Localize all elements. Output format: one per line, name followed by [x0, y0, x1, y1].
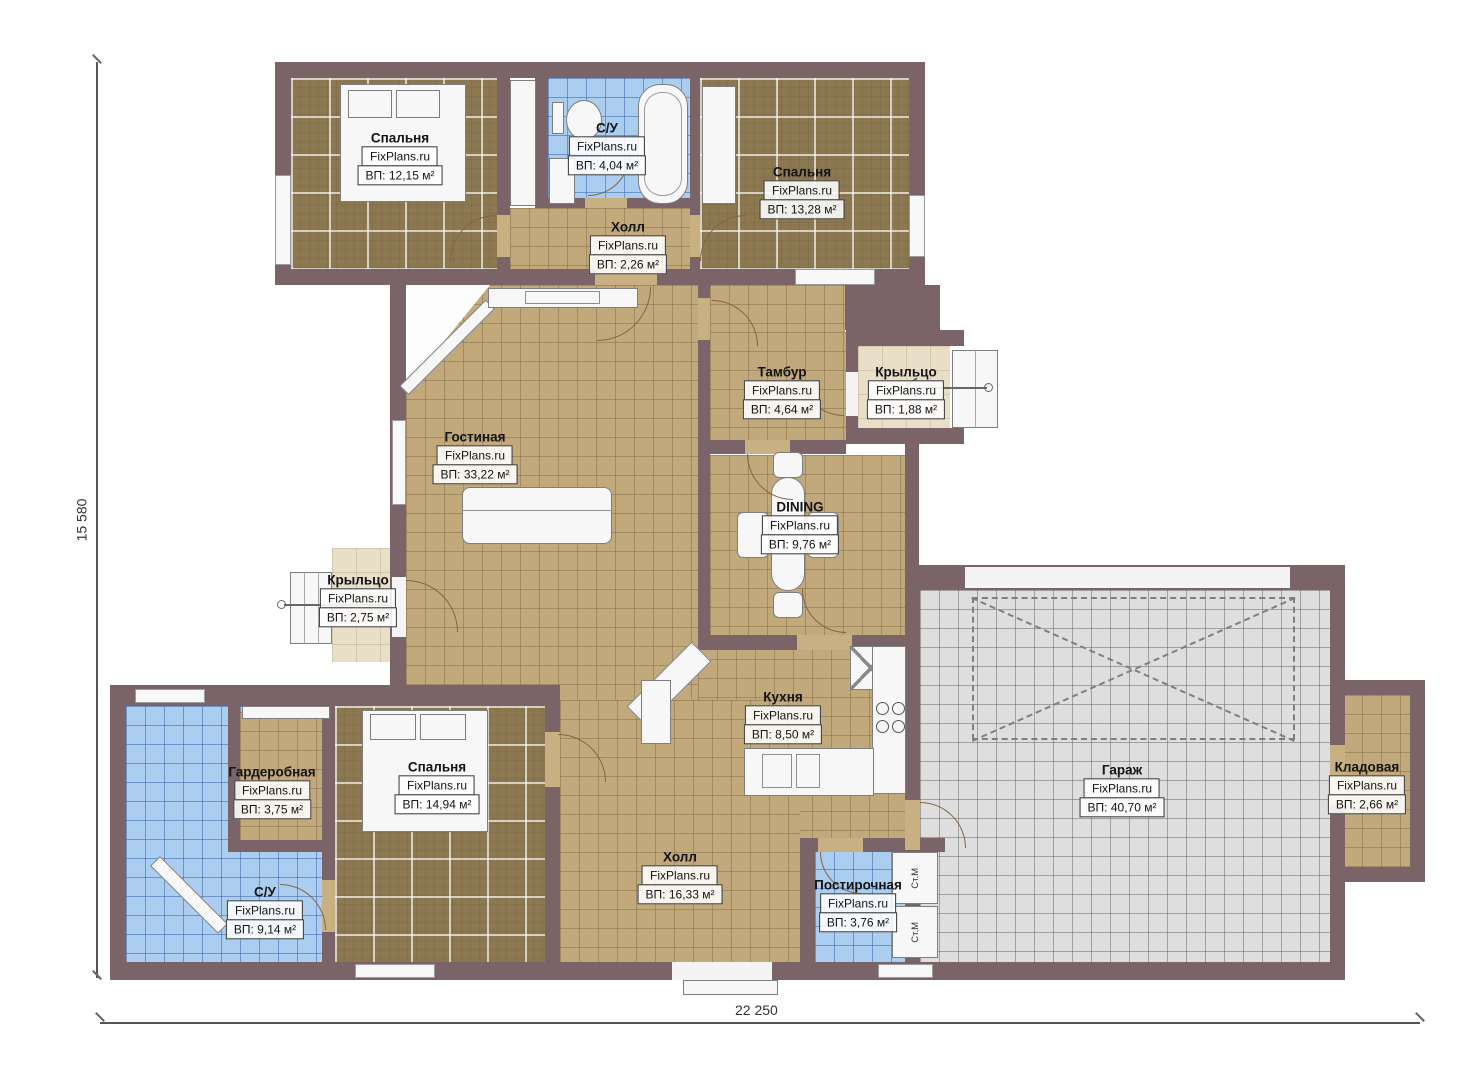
watermark: FixPlans.ru: [868, 380, 944, 400]
watermark: FixPlans.ru: [762, 515, 838, 535]
room-label-wardrobe: Гардеробная FixPlans.ru ВП: 3,75 м²: [228, 764, 315, 819]
stove-burner: [892, 720, 905, 733]
wall: [955, 962, 1345, 980]
room-label-bedroom-top-left: Спальня FixPlans.ru ВП: 12,15 м²: [358, 130, 443, 185]
pillow-symbol: [370, 714, 416, 740]
window: [795, 269, 875, 285]
watermark: FixPlans.ru: [227, 900, 303, 920]
washer-label: Ст.М: [910, 868, 921, 889]
room-label-tambur: Тамбур FixPlans.ru ВП: 4,64 м²: [743, 364, 821, 419]
wall: [1330, 867, 1425, 882]
wall: [846, 428, 964, 444]
room-name: DINING: [776, 499, 823, 514]
floor-plan: Ст.М Ст.М Спальня FixPlans.ru ВП: 12,15 …: [0, 0, 1474, 1080]
room-label-bathroom-bottom: С/У FixPlans.ru ВП: 9,14 м²: [226, 884, 304, 939]
watermark: FixPlans.ru: [764, 180, 840, 200]
entry-arrow-circle: [984, 383, 993, 392]
room-label-garage: Гараж FixPlans.ru ВП: 40,70 м²: [1080, 762, 1165, 817]
window: [135, 689, 205, 703]
room-name: Крыльцо: [875, 364, 936, 379]
room-name: Кладовая: [1335, 759, 1400, 774]
stove-burner: [876, 702, 889, 715]
room-name: Кухня: [763, 689, 802, 704]
door-opening: [698, 298, 710, 340]
dimension-line-vertical: [96, 62, 98, 978]
room-label-hall-top: Холл FixPlans.ru ВП: 2,26 м²: [589, 219, 667, 274]
watermark: FixPlans.ru: [820, 893, 896, 913]
watermark: FixPlans.ru: [362, 146, 438, 166]
exit-step: [683, 980, 778, 995]
door-opening: [818, 838, 863, 852]
watermark: FixPlans.ru: [1329, 775, 1405, 795]
room-area: ВП: 4,64 м²: [743, 400, 821, 420]
stove-burner: [876, 720, 889, 733]
window: [909, 195, 925, 257]
room-name: Холл: [663, 849, 697, 864]
room-area: ВП: 14,94 м²: [395, 795, 480, 815]
window: [355, 964, 435, 978]
stove-burner: [892, 702, 905, 715]
room-area: ВП: 1,88 м²: [867, 400, 945, 420]
wall: [228, 840, 332, 852]
watermark: FixPlans.ru: [642, 865, 718, 885]
room-label-dining: DINING FixPlans.ru ВП: 9,76 м²: [761, 499, 839, 554]
wall: [905, 444, 919, 565]
door-opening: [797, 635, 852, 650]
room-area: ВП: 2,75 м²: [319, 608, 397, 628]
room-area: ВП: 3,75 м²: [233, 800, 311, 820]
wall: [392, 685, 560, 706]
bathtub-inner: [644, 92, 682, 196]
door-opening: [905, 800, 920, 850]
room-label-storage: Кладовая FixPlans.ru ВП: 2,66 м²: [1328, 759, 1406, 814]
room-area: ВП: 12,15 м²: [358, 166, 443, 186]
wardrobe-closet-symbol: [510, 80, 536, 206]
tv-stand-inner: [525, 291, 600, 304]
door-opening: [690, 215, 700, 257]
watermark: FixPlans.ru: [1084, 778, 1160, 798]
dimension-label-width: 22 250: [735, 1002, 778, 1018]
entry-arrow-circle: [277, 600, 286, 609]
entrance-door-opening: [846, 372, 858, 416]
room-area: ВП: 16,33 м²: [638, 885, 723, 905]
watermark: FixPlans.ru: [399, 775, 475, 795]
room-area: ВП: 8,50 м²: [744, 725, 822, 745]
watermark: FixPlans.ru: [234, 780, 310, 800]
wardrobe-closet-symbol: [242, 706, 330, 719]
wall: [110, 962, 560, 980]
room-name: Гостиная: [444, 429, 505, 444]
watermark: FixPlans.ru: [744, 380, 820, 400]
room-name: Крыльцо: [327, 572, 388, 587]
wall: [846, 330, 964, 346]
watermark: FixPlans.ru: [745, 705, 821, 725]
washer-label: Ст.М: [910, 922, 921, 943]
sink-symbol: [796, 754, 820, 788]
door-opening: [585, 198, 627, 208]
room-name: Тамбур: [758, 364, 807, 379]
wall: [110, 685, 126, 980]
room-area: ВП: 2,26 м²: [589, 255, 667, 275]
step-line: [304, 572, 305, 644]
room-name: Гардеробная: [228, 764, 315, 779]
exit-door-opening: [672, 962, 772, 980]
pillow-symbol: [420, 714, 466, 740]
dimension-line-horizontal: [100, 1022, 1420, 1024]
hall-closet-symbol: [641, 680, 671, 744]
sofa-back-line: [462, 487, 612, 511]
sink-symbol: [762, 754, 792, 788]
watermark: FixPlans.ru: [590, 235, 666, 255]
room-label-kitchen: Кухня FixPlans.ru ВП: 8,50 м²: [744, 689, 822, 744]
room-name: Спальня: [773, 164, 831, 179]
watermark: FixPlans.ru: [569, 136, 645, 156]
room-label-bathroom-top: С/У FixPlans.ru ВП: 4,04 м²: [568, 120, 646, 175]
step-line: [975, 350, 976, 428]
room-area: ВП: 4,04 м²: [568, 156, 646, 176]
wall: [275, 62, 925, 78]
room-label-bedroom-top-right: Спальня FixPlans.ru ВП: 13,28 м²: [760, 164, 845, 219]
room-name: С/У: [254, 884, 276, 899]
room-label-bedroom-bottom: Спальня FixPlans.ru ВП: 14,94 м²: [395, 759, 480, 814]
dimension-tick: [1415, 1012, 1425, 1022]
room-label-hall-bottom: Холл FixPlans.ru ВП: 16,33 м²: [638, 849, 723, 904]
room-label-porch-left: Крыльцо FixPlans.ru ВП: 2,75 м²: [319, 572, 397, 627]
pillow-symbol: [396, 90, 440, 118]
room-area: ВП: 9,14 м²: [226, 920, 304, 940]
door-opening: [497, 215, 510, 257]
wall: [535, 78, 548, 208]
chair-symbol: [773, 592, 803, 618]
room-name: Холл: [611, 219, 645, 234]
room-label-living: Гостиная FixPlans.ru ВП: 33,22 м²: [433, 429, 518, 484]
toilet-tank-symbol: [552, 102, 564, 134]
room-label-laundry: Постирочная FixPlans.ru ВП: 3,76 м²: [814, 877, 902, 932]
room-name: Спальня: [408, 759, 466, 774]
room-name: С/У: [596, 120, 618, 135]
room-name: Постирочная: [814, 877, 902, 892]
room-label-porch-right: Крыльцо FixPlans.ru ВП: 1,88 м²: [867, 364, 945, 419]
garage-door-opening: [965, 567, 1290, 588]
pillow-symbol: [348, 90, 392, 118]
room-name: Гараж: [1102, 762, 1142, 777]
dimension-tick: [95, 1012, 105, 1022]
room-area: ВП: 2,66 м²: [1328, 795, 1406, 815]
room-name: Спальня: [371, 130, 429, 145]
wardrobe-closet-symbol: [702, 86, 736, 204]
watermark: FixPlans.ru: [437, 445, 513, 465]
window: [392, 420, 406, 505]
room-area: ВП: 33,22 м²: [433, 465, 518, 485]
wall: [845, 285, 940, 330]
wall: [1410, 680, 1425, 882]
watermark: FixPlans.ru: [320, 588, 396, 608]
room-area: ВП: 9,76 м²: [761, 535, 839, 555]
wall: [800, 845, 815, 962]
dimension-label-height: 15 580: [73, 499, 89, 542]
room-area: ВП: 40,70 м²: [1080, 798, 1165, 818]
window: [878, 964, 933, 978]
window: [275, 175, 291, 265]
room-area: ВП: 13,28 м²: [760, 200, 845, 220]
room-area: ВП: 3,76 м²: [819, 913, 897, 933]
